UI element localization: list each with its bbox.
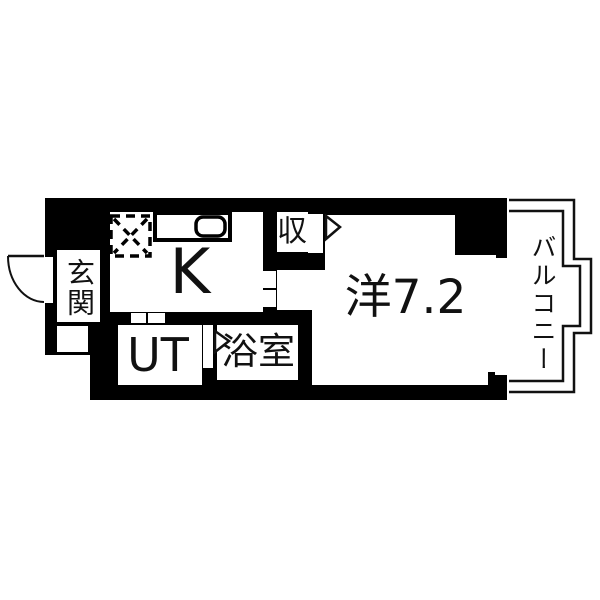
closet-door-panel — [308, 214, 323, 253]
window-opening — [495, 258, 507, 375]
bathroom-door-panel — [203, 325, 213, 368]
door-gap-marker — [131, 313, 146, 323]
utility-label: UT — [113, 329, 203, 381]
entrance-label: 玄関 — [62, 253, 94, 323]
kitchen-label: K — [158, 238, 222, 306]
door-gap-marker — [263, 271, 276, 288]
entrance-door-opening — [43, 257, 53, 303]
western-room-label: 洋7.2 — [328, 270, 483, 326]
entrance-step — [57, 326, 88, 352]
entrance-door-arc-icon — [8, 256, 44, 302]
closet-label: 収 — [275, 214, 309, 250]
door-gap-marker — [263, 290, 276, 307]
kitchen-utility-sliding-door — [131, 313, 165, 323]
gas-stove-icon — [111, 216, 150, 256]
balcony-label: バルコニー — [527, 229, 555, 379]
bathroom-label: 浴室 — [218, 331, 298, 373]
floor-plan-canvas: 玄関 K 収 UT 浴室 洋7.2 バルコニー — [0, 0, 600, 600]
door-gap-marker — [148, 313, 165, 323]
